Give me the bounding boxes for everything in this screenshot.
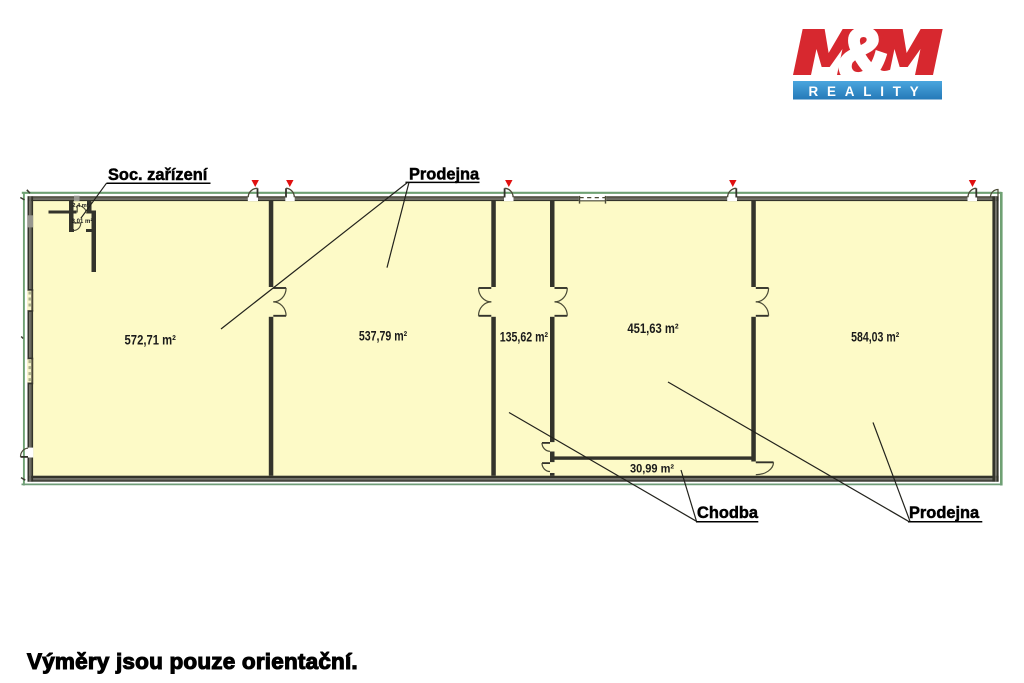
svg-text:Soc. zařízení: Soc. zařízení xyxy=(108,166,208,184)
svg-text:584,03 m²: 584,03 m² xyxy=(851,329,900,344)
svg-text:Prodejna: Prodejna xyxy=(409,166,480,184)
svg-text:135,62 m²: 135,62 m² xyxy=(500,330,549,345)
svg-text:30,99 m²: 30,99 m² xyxy=(630,461,674,475)
svg-text:572,71 m²: 572,71 m² xyxy=(125,332,177,347)
svg-text:Prodejna: Prodejna xyxy=(909,504,980,522)
svg-text:451,63 m²: 451,63 m² xyxy=(627,321,679,336)
svg-text:Chodba: Chodba xyxy=(697,504,759,522)
svg-text:REALITY: REALITY xyxy=(809,84,928,99)
svg-text:537,79 m²: 537,79 m² xyxy=(359,328,408,343)
svg-text:2,4 m²: 2,4 m² xyxy=(72,202,88,209)
svg-text:3,01 m²: 3,01 m² xyxy=(72,218,93,225)
svg-text:Výměry jsou pouze orientační.: Výměry jsou pouze orientační. xyxy=(27,649,358,674)
